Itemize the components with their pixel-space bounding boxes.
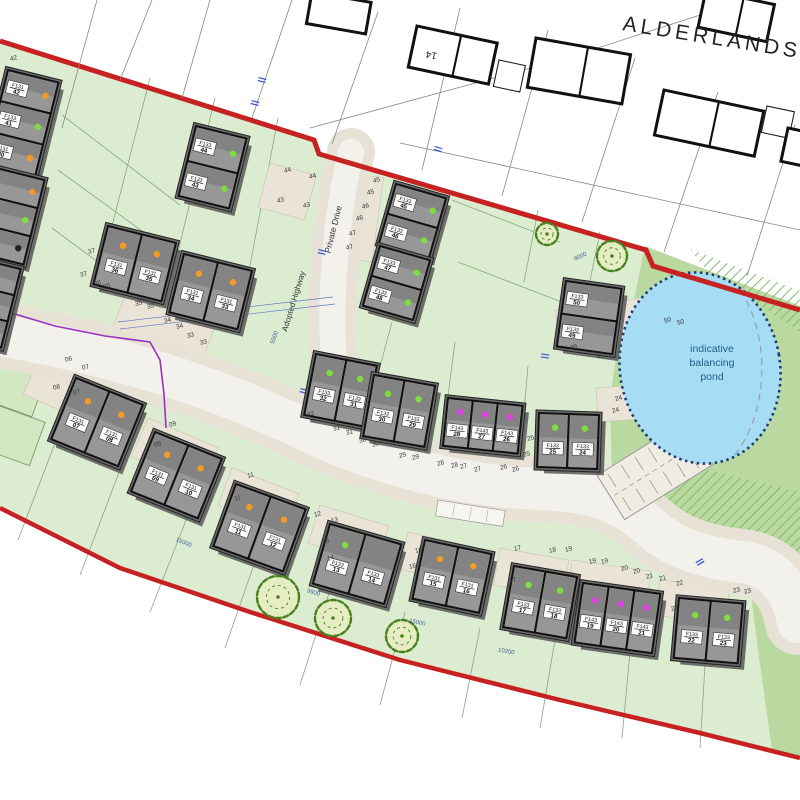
pond-label: pond: [700, 371, 724, 383]
tree-icon: [536, 223, 558, 245]
house-plot-number: 28: [453, 431, 461, 439]
tree-icon: [257, 576, 299, 618]
house-block: F13322F13323: [670, 595, 750, 670]
house-plot-number: 23: [719, 640, 727, 648]
house-block: F13350F13349: [553, 278, 629, 361]
site-plan-page: ALDERLANDS14Adopted HighwayPrivate Drive…: [0, 0, 800, 800]
house-plot-number: 22: [688, 637, 696, 645]
house-block: F13325F13324: [534, 410, 606, 475]
house-plot-number: 25: [549, 448, 557, 455]
tree-trunk: [400, 634, 404, 638]
tree-trunk: [545, 232, 549, 236]
house-plot-number: 24: [579, 450, 587, 457]
pond-label: indicative: [690, 343, 734, 355]
tree-trunk: [276, 595, 280, 599]
tree-trunk: [331, 616, 335, 620]
house-plot-number: 26: [503, 436, 511, 444]
existing-building: [493, 60, 525, 92]
pond-label: balancing: [690, 357, 735, 369]
house-block: F13317F13318: [499, 563, 584, 646]
existing-building-outline: [493, 60, 525, 92]
tree-icon: [315, 600, 351, 636]
site-plan-drawing: ALDERLANDS14Adopted HighwayPrivate Drive…: [0, 0, 800, 800]
tree-icon: [597, 241, 627, 271]
house-block: F14319F14320F14321: [571, 580, 668, 661]
tree-trunk: [610, 254, 614, 258]
house-plot-number: 27: [478, 433, 486, 441]
house-block: F14328F14327F14326: [439, 395, 529, 461]
